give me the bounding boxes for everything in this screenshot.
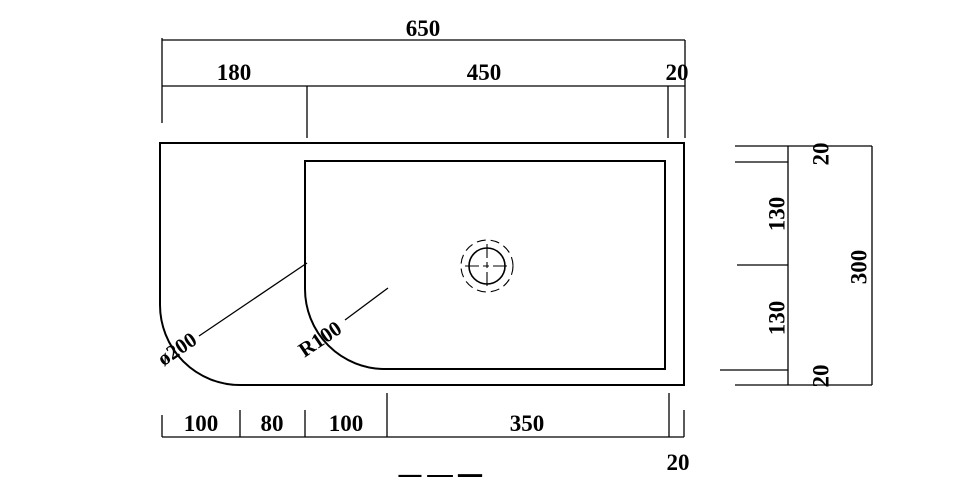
dim-label-right-seg-20-top: 20 [809, 143, 834, 166]
plan-drawing-canvas: 650 180 450 20 100 80 100 350 20 20 130 … [0, 0, 971, 477]
technical-drawing-page: 650 180 450 20 100 80 100 350 20 20 130 … [0, 0, 971, 477]
dim-label-top-seg-20: 20 [666, 60, 689, 85]
annotation-outer-corner-diameter: ø200 [153, 327, 201, 370]
dim-label-top-seg-450: 450 [467, 60, 502, 85]
dim-label-bottom-seg-80: 80 [261, 411, 284, 436]
countertop-outer-outline [160, 143, 684, 385]
basin-inner-outline [305, 161, 665, 369]
leader-line-basin-corner [345, 288, 388, 320]
drawing-caption: 平面图 [396, 473, 486, 477]
dim-label-top-seg-180: 180 [217, 60, 252, 85]
leader-line-outer-corner [199, 263, 307, 336]
dim-label-right-seg-130-lower: 130 [765, 301, 790, 336]
dim-label-bottom-seg-350: 350 [510, 411, 545, 436]
dim-label-right-seg-130-upper: 130 [765, 197, 790, 232]
dim-label-bottom-seg-100b: 100 [329, 411, 364, 436]
dim-label-bottom-seg-100a: 100 [184, 411, 219, 436]
dim-label-right-total: 300 [847, 250, 872, 285]
dim-label-top-total: 650 [406, 16, 441, 41]
dim-label-right-seg-20-bottom: 20 [809, 365, 834, 388]
dim-label-bottom-right-offset: 20 [667, 450, 690, 475]
